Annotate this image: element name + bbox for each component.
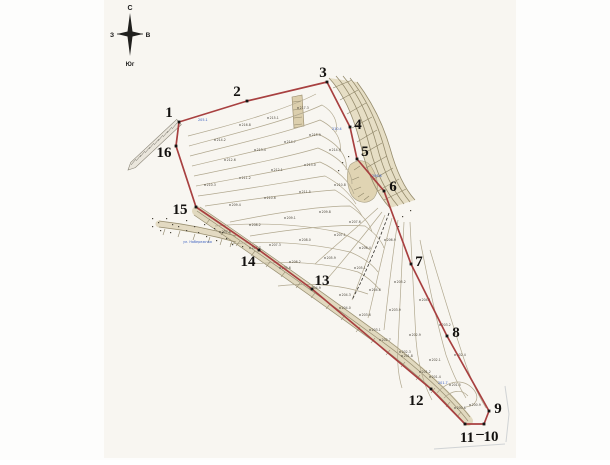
vertex-marker	[446, 335, 449, 338]
terrain-speck	[226, 238, 227, 239]
vertex-number: 1	[165, 105, 173, 121]
spot-elevation-dot	[239, 124, 240, 125]
vertex-number: 9	[494, 401, 502, 417]
terrain-speck	[152, 218, 153, 219]
scanned-survey-plan: 214.2216.8215.1217.3212.6213.4214.7215.9…	[0, 0, 610, 460]
spot-elevation-dot	[399, 351, 400, 352]
spot-elevation-dot	[267, 117, 268, 118]
elevation-label: 209.4	[232, 203, 241, 207]
spot-elevation-dot	[214, 139, 215, 140]
blue-elevation-label: 210.4	[332, 127, 342, 131]
terrain-speck	[206, 236, 207, 237]
vertex-marker	[488, 410, 491, 413]
spot-elevation-dot	[334, 184, 335, 185]
spot-elevation-dot	[269, 244, 270, 245]
map-sheet-paper	[104, 0, 516, 458]
spot-elevation-dot	[309, 134, 310, 135]
spot-elevation-dot	[264, 197, 265, 198]
spot-elevation-dot	[429, 376, 430, 377]
elevation-label: 212.1	[274, 168, 283, 172]
spot-elevation-dot	[469, 404, 470, 405]
spot-elevation-dot	[359, 314, 360, 315]
spot-elevation-dot	[339, 307, 340, 308]
spot-elevation-dot	[329, 149, 330, 150]
elevation-label: 203.1	[372, 328, 381, 332]
elevation-label: 202.3	[402, 350, 411, 354]
elevation-label: 206.4	[362, 246, 371, 250]
spot-elevation-dot	[349, 221, 350, 222]
spot-elevation-dot	[249, 224, 250, 225]
terrain-speck	[186, 220, 187, 221]
vertex-number: 5	[361, 144, 369, 160]
blue-elevation-label: 201.7	[438, 381, 448, 385]
spot-elevation-dot	[369, 289, 370, 290]
vertex-number: 10	[484, 429, 499, 445]
vertex-marker	[410, 263, 413, 266]
elevation-label: 217.3	[300, 106, 309, 110]
elevation-label: 209.1	[287, 216, 296, 220]
elevation-label: 201.5	[452, 383, 461, 387]
elevation-label: 201.4	[432, 375, 441, 379]
terrain-speck	[160, 230, 161, 231]
elevation-label: 208.0	[302, 238, 311, 242]
elevation-label: 207.6	[352, 220, 361, 224]
terrain-speck	[402, 216, 403, 217]
spot-elevation-dot	[284, 217, 285, 218]
elevation-label: 200.9	[472, 403, 481, 407]
spot-elevation-dot	[354, 267, 355, 268]
elevation-label: 211.5	[302, 190, 311, 194]
elevation-label: 214.7	[287, 140, 296, 144]
elevation-label: 202.9	[412, 333, 421, 337]
elevation-label: 212.6	[227, 158, 236, 162]
terrain-speck	[186, 230, 187, 231]
spot-elevation-dot	[271, 169, 272, 170]
vertex-number: 15	[173, 202, 188, 218]
compass-south-label: Юг	[126, 62, 135, 68]
spot-elevation-dot	[297, 107, 298, 108]
vertex-number: 13	[315, 273, 330, 289]
spot-elevation-dot	[219, 231, 220, 232]
vertex-number: 6	[389, 179, 397, 195]
vertex-marker	[383, 190, 386, 193]
elevation-label: 205.9	[327, 256, 336, 260]
terrain-speck	[166, 218, 167, 219]
spot-elevation-dot	[299, 239, 300, 240]
elevation-label: 205.1	[357, 266, 366, 270]
spot-elevation-dot	[284, 141, 285, 142]
spot-elevation-dot	[449, 384, 450, 385]
elevation-label: 215.1	[270, 116, 279, 120]
vertex-number: 14	[241, 254, 257, 270]
spot-elevation-dot	[379, 339, 380, 340]
spot-elevation-dot	[334, 234, 335, 235]
elevation-label: 205.2	[397, 280, 406, 284]
vertex-number: 12	[409, 393, 424, 409]
blue-elevation-label: 205.1	[198, 118, 208, 122]
terrain-speck	[204, 224, 205, 225]
spot-elevation-dot	[419, 371, 420, 372]
vertex-number: 4	[354, 117, 362, 133]
spot-elevation-dot	[454, 354, 455, 355]
spot-elevation-dot	[389, 309, 390, 310]
vertex-marker	[349, 126, 352, 129]
vertex-number: 16	[157, 145, 173, 161]
terrain-speck	[158, 222, 159, 223]
terrain-speck	[178, 226, 179, 227]
vertex-number: 7	[415, 254, 423, 270]
spot-elevation-dot	[369, 329, 370, 330]
vertex-marker	[356, 158, 359, 161]
vertex-number-separator: –	[475, 426, 484, 442]
vertex-marker	[195, 206, 198, 209]
elevation-label: 213.0	[307, 163, 316, 167]
terrain-speck	[214, 228, 215, 229]
terrain-fill	[292, 95, 304, 128]
elevation-label: 201.2	[422, 370, 431, 374]
street-name-label: ул. Набережная	[183, 240, 212, 244]
terrain-speck	[338, 170, 339, 171]
vertex-marker	[464, 423, 467, 426]
elevation-label: 207.1	[337, 233, 346, 237]
elevation-label: 210.8	[337, 183, 346, 187]
terrain-speck	[348, 156, 349, 157]
spot-elevation-dot	[339, 294, 340, 295]
elevation-label: 203.9	[392, 308, 401, 312]
terrain-speck	[170, 232, 171, 233]
spot-elevation-dot	[429, 359, 430, 360]
vertex-marker	[178, 121, 181, 124]
vertex-marker	[258, 249, 261, 252]
vertex-number: 8	[452, 325, 460, 341]
elevation-label: 206.2	[292, 260, 301, 264]
spot-elevation-dot	[299, 191, 300, 192]
elevation-label: 203.6	[362, 313, 371, 317]
spot-elevation-dot	[394, 281, 395, 282]
spot-elevation-dot	[229, 204, 230, 205]
spot-elevation-dot	[289, 261, 290, 262]
terrain-speck	[232, 244, 233, 245]
terrain-speck	[198, 232, 199, 233]
vertex-number: 3	[319, 65, 327, 81]
elevation-label: 215.9	[312, 133, 321, 137]
elevation-label: 201.8	[404, 354, 413, 358]
elevation-label: 211.2	[242, 176, 251, 180]
elevation-label: 204.8	[372, 288, 381, 292]
elevation-label: 200.6	[457, 406, 466, 410]
spot-elevation-dot	[359, 247, 360, 248]
spot-elevation-dot	[304, 164, 305, 165]
vertex-marker	[430, 388, 433, 391]
spot-elevation-dot	[279, 267, 280, 268]
elevation-label: 208.2	[252, 223, 261, 227]
vertex-marker	[246, 100, 249, 103]
spot-elevation-dot	[239, 177, 240, 178]
elevation-label: 202.7	[382, 338, 391, 342]
spot-elevation-dot	[454, 407, 455, 408]
spot-elevation-dot	[319, 211, 320, 212]
spot-elevation-dot	[401, 355, 402, 356]
spot-elevation-dot	[409, 334, 410, 335]
terrain-speck	[194, 226, 195, 227]
terrain-speck	[342, 162, 343, 163]
elevation-label: 207.3	[272, 243, 281, 247]
vertex-marker	[483, 423, 486, 426]
vertex-marker	[311, 288, 314, 291]
elevation-label: 204.0	[342, 306, 351, 310]
terrain-speck	[152, 226, 153, 227]
compass-east-label: В	[146, 32, 151, 39]
elevation-label: 206.9	[387, 238, 396, 242]
spot-elevation-dot	[419, 299, 420, 300]
terrain-speck	[242, 246, 243, 247]
terrain-speck	[216, 240, 217, 241]
spot-elevation-dot	[204, 184, 205, 185]
vertex-marker	[175, 145, 178, 148]
elevation-label: 210.3	[207, 183, 216, 187]
elevation-label: 210.6	[267, 196, 276, 200]
elevation-label: 209.8	[322, 210, 331, 214]
elevation-label: 214.2	[217, 138, 226, 142]
compass-west-label: З	[110, 32, 114, 39]
compass-north-label: С	[127, 5, 132, 12]
vertex-number: 2	[233, 84, 241, 100]
elevation-label: 213.4	[257, 148, 266, 152]
terrain-speck	[172, 224, 173, 225]
elevation-label: 204.3	[342, 293, 351, 297]
spot-elevation-dot	[224, 159, 225, 160]
vertex-marker	[326, 81, 329, 84]
elevation-label: 216.8	[242, 123, 251, 127]
spot-elevation-dot	[249, 247, 250, 248]
spot-elevation-dot	[254, 149, 255, 150]
terrain-speck	[410, 210, 411, 211]
spot-elevation-dot	[324, 257, 325, 258]
elevation-label: 214.9	[332, 148, 341, 152]
survey-plan-map: 214.2216.8215.1217.3212.6213.4214.7215.9…	[0, 0, 610, 460]
vertex-number: 11	[460, 430, 474, 446]
spot-elevation-dot	[384, 239, 385, 240]
elevation-label: 202.1	[432, 358, 441, 362]
